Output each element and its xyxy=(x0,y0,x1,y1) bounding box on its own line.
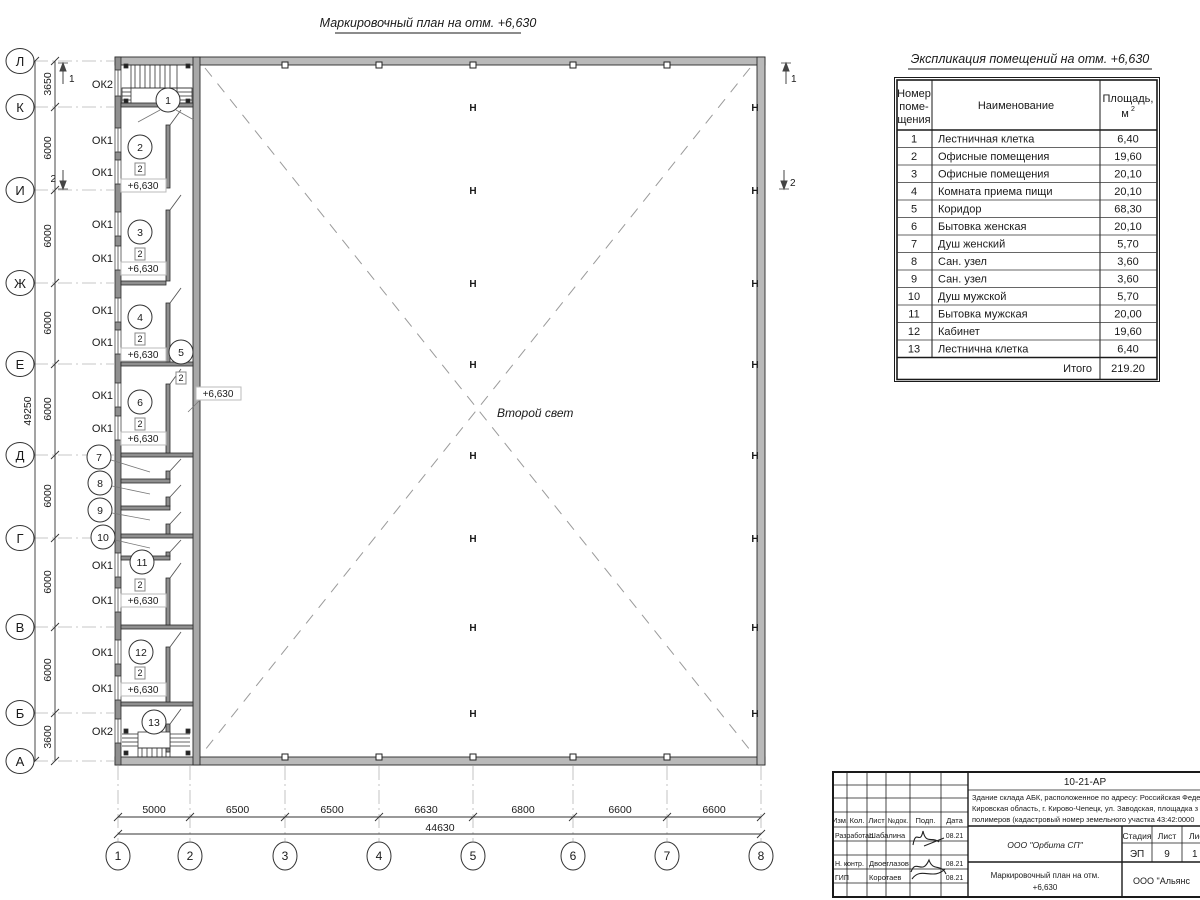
level-mark: +6,630 xyxy=(128,434,159,445)
svg-text:3,60: 3,60 xyxy=(1117,274,1138,286)
svg-text:Кабинет: Кабинет xyxy=(938,326,980,338)
client-org: ООО "Альянс xyxy=(1133,876,1190,886)
description-line: полимеров (кадастровый номер земельного … xyxy=(972,815,1194,824)
svg-text:5,70: 5,70 xyxy=(1117,239,1138,251)
window-label-ok1: ОК1 xyxy=(92,219,113,231)
dim-value: 6000 xyxy=(42,658,54,682)
header-area-sup: 2 xyxy=(1131,106,1135,113)
section-mark-1: 1 xyxy=(69,74,75,85)
total-label: Итого xyxy=(1063,363,1092,375)
room-number: 9 xyxy=(97,505,103,517)
table-row: 1Лестничная клетка6,40 xyxy=(911,134,1139,146)
svg-text:Офисные помещения: Офисные помещения xyxy=(938,151,1049,163)
column-mark: Н xyxy=(751,186,758,197)
level-mark: +6,630 xyxy=(128,350,159,361)
room-number: 2 xyxy=(137,142,143,154)
room-number: 10 xyxy=(97,532,109,544)
description-line: Кировская область, г. Кирово-Чепецк, ул.… xyxy=(972,804,1199,813)
section-marks: 1 2 1 2 xyxy=(50,63,797,189)
level-mark: +6,630 xyxy=(128,181,159,192)
dim-value: 6600 xyxy=(608,804,632,816)
sign-date: 08.21 xyxy=(946,861,964,868)
window-labels: ОК2 ОК1 ОК1 ОК1 ОК1 ОК1 ОК1 ОК1 ОК1 ОК1 … xyxy=(92,79,113,738)
window-label-ok1: ОК1 xyxy=(92,167,113,179)
explication-table: Экспликация помещений на отм. +6,630 Ном… xyxy=(895,52,1160,382)
window-label-ok1: ОК1 xyxy=(92,560,113,572)
axis-number: 6 xyxy=(570,849,577,863)
floor-type: 2 xyxy=(137,164,142,174)
explication-total-row: Итого 219.20 xyxy=(1063,363,1145,375)
total-value: 219.20 xyxy=(1111,363,1145,375)
window-label-ok2: ОК2 xyxy=(92,79,113,91)
section-mark-2: 2 xyxy=(50,174,56,185)
dim-value: 6600 xyxy=(702,804,726,816)
window-label-ok1: ОК1 xyxy=(92,595,113,607)
plan-canvas: Маркировочный план на отм. +6,630 xyxy=(0,0,1200,900)
column-mark: Н xyxy=(469,709,476,720)
svg-text:20,00: 20,00 xyxy=(1114,309,1142,321)
svg-text:19,60: 19,60 xyxy=(1114,151,1142,163)
dim-value: 6500 xyxy=(320,804,344,816)
column-mark: Н xyxy=(751,103,758,114)
col-ndoc: №док. xyxy=(888,818,909,825)
floor-type: 2 xyxy=(137,668,142,678)
project-description: Здание склада АБК, расположенное по адре… xyxy=(972,793,1200,824)
axis-number: 4 xyxy=(376,849,383,863)
col-izm: Изм. xyxy=(832,816,848,825)
dim-value: 6000 xyxy=(42,484,54,508)
table-row: 10Душ мужской5,70 xyxy=(908,291,1139,303)
level-mark: +6,630 xyxy=(203,389,234,400)
floor-type: 2 xyxy=(137,419,142,429)
level-mark: +6,630 xyxy=(128,264,159,275)
header-num: поме- xyxy=(899,101,929,113)
room-number: 1 xyxy=(165,95,171,107)
dim-value: 6000 xyxy=(42,136,54,160)
column-mark: Н xyxy=(751,534,758,545)
axis-number: 2 xyxy=(187,849,194,863)
person-name: Двоеглазов xyxy=(869,859,909,868)
svg-text:5: 5 xyxy=(911,204,917,216)
svg-text:20,10: 20,10 xyxy=(1114,169,1142,181)
window-label-ok1: ОК1 xyxy=(92,683,113,695)
header-name: Наименование xyxy=(978,100,1054,112)
header-num: Номер xyxy=(897,88,931,100)
section-mark-2: 2 xyxy=(790,178,796,189)
table-row: 6Бытовка женская20,10 xyxy=(911,221,1142,233)
room-number: 5 xyxy=(178,347,184,359)
stage-value: ЭП xyxy=(1130,849,1144,860)
role-label: ГИП xyxy=(835,875,849,882)
svg-text:11: 11 xyxy=(908,309,919,321)
axis-number: 5 xyxy=(470,849,477,863)
svg-text:2: 2 xyxy=(911,151,917,163)
svg-text:9: 9 xyxy=(911,274,917,286)
room-number: 11 xyxy=(137,557,148,569)
room-number: 8 xyxy=(97,478,103,490)
axis-letter: Ж xyxy=(14,276,26,291)
svg-text:Лестнична клетка: Лестнична клетка xyxy=(938,344,1029,356)
axis-number: 1 xyxy=(115,849,122,863)
window-label-ok1: ОК1 xyxy=(92,390,113,402)
col-data: Дата xyxy=(946,816,963,825)
table-row: 9Сан. узел3,60 xyxy=(911,274,1139,286)
table-row: 13Лестнична клетка6,40 xyxy=(908,344,1139,356)
column-mark: Н xyxy=(751,279,758,290)
svg-text:10: 10 xyxy=(908,291,920,303)
table-row: 12Кабинет19,60 xyxy=(908,326,1142,338)
axis-number: 7 xyxy=(664,849,671,863)
project-code: 10-21-АР xyxy=(1064,777,1107,788)
window-label-ok2: ОК2 xyxy=(92,726,113,738)
svg-text:6: 6 xyxy=(911,221,917,233)
room-number: 3 xyxy=(137,227,143,239)
window-label-ok1: ОК1 xyxy=(92,253,113,265)
svg-text:3: 3 xyxy=(911,169,917,181)
explication-header: Номер поме- щения Наименование Площадь, … xyxy=(897,88,1153,126)
floor-type: 2 xyxy=(137,334,142,344)
svg-text:4: 4 xyxy=(911,186,917,198)
svg-text:19,60: 19,60 xyxy=(1114,326,1142,338)
role-label: Н. контр. xyxy=(835,861,864,868)
table-row: 3Офисные помещения20,10 xyxy=(911,169,1142,181)
svg-text:Сан. узел: Сан. узел xyxy=(938,274,987,286)
table-row: 2Офисные помещения19,60 xyxy=(911,151,1142,163)
second-light-label: Второй свет xyxy=(497,406,573,420)
drawing-title: Маркировочный план на отм. +6,630 xyxy=(320,16,537,33)
room-number: 7 xyxy=(96,452,102,464)
axis-number: 8 xyxy=(758,849,765,863)
sheet-value: 9 xyxy=(1164,849,1170,860)
svg-text:Сан. узел: Сан. узел xyxy=(938,256,987,268)
bottom-dimension-values: 5000 6500 6500 6630 6800 6600 6600 44630 xyxy=(142,804,726,834)
column-mark: Н xyxy=(751,451,758,462)
column-mark: Н xyxy=(469,360,476,371)
dim-value: 6000 xyxy=(42,397,54,421)
exterior-walls xyxy=(115,57,765,765)
header-area: Площадь, xyxy=(1103,93,1154,105)
room-number: 13 xyxy=(148,717,160,729)
dim-value: 6000 xyxy=(42,224,54,248)
dim-value: 6800 xyxy=(511,804,535,816)
title-block: 10-21-АР Здание склада АБК, расположенно… xyxy=(832,772,1200,897)
level-mark: +6,630 xyxy=(128,596,159,607)
axis-letter: Л xyxy=(16,54,25,69)
left-wall-windows xyxy=(115,70,121,743)
col-list: Лист xyxy=(868,816,885,825)
svg-text:6,40: 6,40 xyxy=(1117,134,1138,146)
table-row: 4Комната приема пищи20,10 xyxy=(911,186,1142,198)
number-axis-bubbles: 1 2 3 4 5 6 7 8 xyxy=(106,842,773,870)
section-mark-1: 1 xyxy=(791,74,797,85)
dim-value: 3600 xyxy=(42,725,54,749)
svg-text:Лестничная клетка: Лестничная клетка xyxy=(938,134,1035,146)
explication-title: Экспликация помещений на отм. +6,630 xyxy=(911,52,1150,66)
header-area-unit: м xyxy=(1121,108,1129,120)
column-mark: Н xyxy=(469,279,476,290)
axis-letter: Е xyxy=(16,357,25,372)
window-label-ok1: ОК1 xyxy=(92,135,113,147)
table-row: 11Бытовка мужская20,00 xyxy=(908,309,1141,321)
axis-letter: Г xyxy=(16,531,23,546)
description-line: Здание склада АБК, расположенное по адре… xyxy=(972,793,1200,802)
axis-number: 3 xyxy=(282,849,289,863)
table-row: 8Сан. узел3,60 xyxy=(911,256,1139,268)
column-mark: Н xyxy=(751,709,758,720)
sheets-value: 1 xyxy=(1192,849,1198,860)
svg-text:Душ женский: Душ женский xyxy=(938,239,1005,251)
column-mark: Н xyxy=(469,623,476,634)
svg-text:3,60: 3,60 xyxy=(1117,256,1138,268)
sign-date: 08.21 xyxy=(946,833,964,840)
window-label-ok1: ОК1 xyxy=(92,647,113,659)
left-dimension-values: 3650 6000 6000 6000 6000 6000 6000 6000 … xyxy=(22,72,54,749)
svg-text:5,70: 5,70 xyxy=(1117,291,1138,303)
sign-date: 08.21 xyxy=(946,875,964,882)
level-mark: +6,630 xyxy=(128,685,159,696)
dim-value: 6000 xyxy=(42,570,54,594)
room-number: 12 xyxy=(135,647,147,659)
svg-text:Бытовка женская: Бытовка женская xyxy=(938,221,1026,233)
dim-value: 6500 xyxy=(226,804,250,816)
table-row: 7Душ женский5,70 xyxy=(911,239,1139,251)
window-label-ok1: ОК1 xyxy=(92,337,113,349)
col-podp: Подп. xyxy=(916,816,936,825)
svg-text:7: 7 xyxy=(911,239,917,251)
svg-text:68,30: 68,30 xyxy=(1114,204,1142,216)
void-cross-lines xyxy=(205,68,750,750)
axis-letter: В xyxy=(16,620,25,635)
dim-value: 3650 xyxy=(42,72,54,96)
room-number: 4 xyxy=(137,312,143,324)
axis-letter: А xyxy=(16,754,25,769)
floor-type: 2 xyxy=(137,580,142,590)
sheets-label: Листов xyxy=(1189,831,1200,841)
doc-title-line: Маркировочный план на отм. xyxy=(991,871,1100,880)
axis-letter: Д xyxy=(16,448,25,463)
doc-title-line: +6,630 xyxy=(1033,883,1058,892)
svg-text:6,40: 6,40 xyxy=(1117,344,1138,356)
header-num: щения xyxy=(897,114,930,126)
floor-type: 2 xyxy=(178,373,183,383)
svg-text:12: 12 xyxy=(908,326,920,338)
svg-text:Коридор: Коридор xyxy=(938,204,981,216)
drawing-title-text: Маркировочный план на отм. +6,630 xyxy=(320,16,537,30)
axis-letter: К xyxy=(16,100,24,115)
role-label: Разработал xyxy=(835,832,873,840)
sheet-label: Лист xyxy=(1158,831,1177,841)
corridor-wall xyxy=(166,125,170,752)
column-mark: Н xyxy=(751,360,758,371)
table-row: 5Коридор68,30 xyxy=(911,204,1142,216)
person-name: Шабалина xyxy=(869,831,906,840)
design-org: ООО "Орбита СП" xyxy=(1007,840,1083,850)
col-kol: Кол. xyxy=(850,816,865,825)
door-leaves xyxy=(170,110,181,724)
room-number: 6 xyxy=(137,397,143,409)
dim-value: 5000 xyxy=(142,804,166,816)
svg-text:Душ мужской: Душ мужской xyxy=(938,291,1006,303)
column-mark: Н xyxy=(469,103,476,114)
column-mark: Н xyxy=(751,623,758,634)
column-mark: Н xyxy=(469,186,476,197)
stage-label: Стадия xyxy=(1123,831,1152,841)
dim-value: 6000 xyxy=(42,311,54,335)
dim-total: 44630 xyxy=(425,822,454,834)
dim-total: 49250 xyxy=(22,396,34,425)
svg-text:20,10: 20,10 xyxy=(1114,186,1142,198)
window-label-ok1: ОК1 xyxy=(92,305,113,317)
floor-type: 2 xyxy=(137,249,142,259)
svg-text:1: 1 xyxy=(911,134,917,146)
svg-text:Офисные помещения: Офисные помещения xyxy=(938,169,1049,181)
axis-letter: Б xyxy=(16,706,25,721)
dim-value: 6630 xyxy=(414,804,438,816)
axis-letter: И xyxy=(15,183,24,198)
column-mark: Н xyxy=(469,451,476,462)
drawing-sheet: Маркировочный план на отм. +6,630 xyxy=(0,0,1200,900)
svg-text:8: 8 xyxy=(911,256,917,268)
svg-text:20,10: 20,10 xyxy=(1114,221,1142,233)
person-name: Коротаев xyxy=(869,873,901,882)
svg-text:Комната приема пищи: Комната приема пищи xyxy=(938,186,1053,198)
column-mark: Н xyxy=(469,534,476,545)
wall-column-pads xyxy=(282,62,670,760)
svg-text:13: 13 xyxy=(908,344,920,356)
window-label-ok1: ОК1 xyxy=(92,423,113,435)
svg-text:Бытовка мужская: Бытовка мужская xyxy=(938,309,1028,321)
